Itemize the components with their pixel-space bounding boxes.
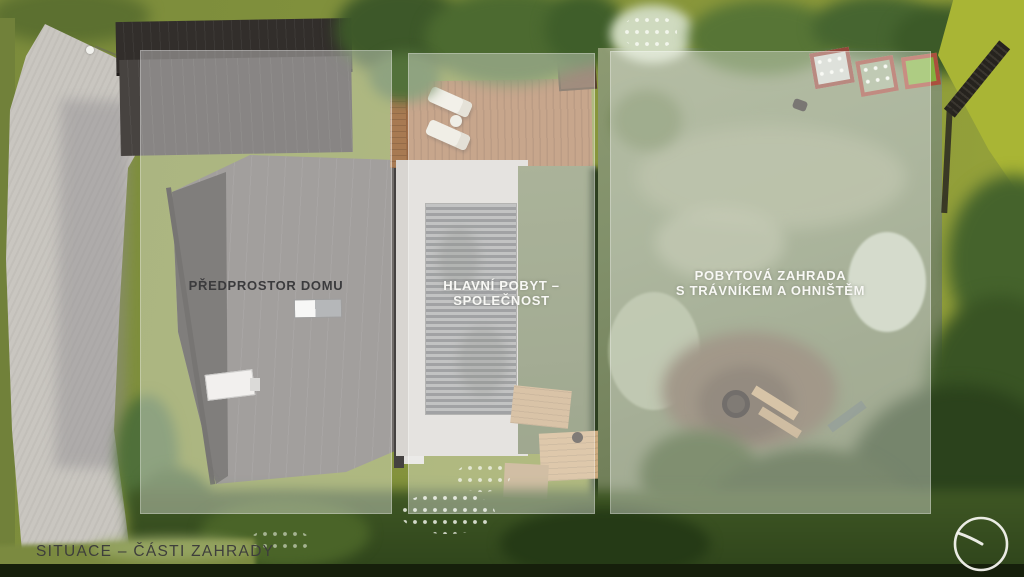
plan-title: SITUACE – ČÁSTI ZAHRADY — [36, 543, 274, 561]
flower-dots-top — [622, 14, 677, 50]
zone-hlavni-pobyt: HLAVNÍ POBYT – SPOLEČNOST — [408, 53, 595, 514]
zone-predprostor-domu: PŘEDPROSTOR DOMU — [140, 50, 392, 514]
circle-swoosh-logo-icon — [948, 511, 1014, 577]
house-shadow-on-driveway — [55, 99, 131, 468]
zone-label-predprostor: PŘEDPROSTOR DOMU — [141, 278, 391, 293]
zone-label-hlavni-pobyt: HLAVNÍ POBYT – SPOLEČNOST — [409, 278, 594, 308]
bottom-dark-edge — [0, 564, 1024, 577]
site-plan-canvas: PŘEDPROSTOR DOMU HLAVNÍ POBYT – SPOLEČNO… — [0, 0, 1024, 577]
boundary-fence-post — [941, 108, 952, 213]
zone-label-pobytova-zahrada: POBYTOVÁ ZAHRADA S TRÁVNÍKEM A OHNIŠTĚM — [611, 268, 930, 298]
lamp-dot — [86, 46, 94, 54]
zone-pobytova-zahrada: POBYTOVÁ ZAHRADA S TRÁVNÍKEM A OHNIŠTĚM — [610, 51, 931, 514]
